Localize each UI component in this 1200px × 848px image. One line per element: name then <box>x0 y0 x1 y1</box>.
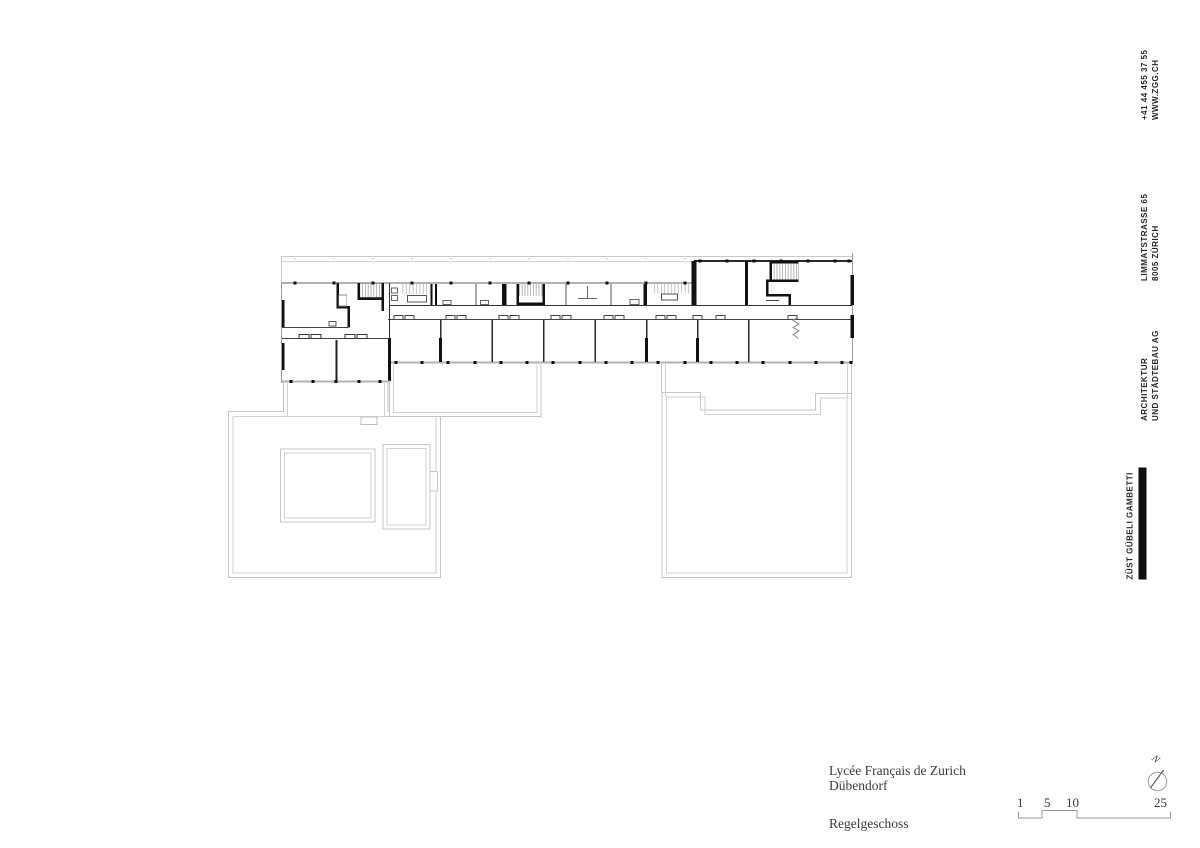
classroom-partitions <box>439 320 748 362</box>
north-arrow <box>1148 770 1167 791</box>
drawing-sheet: Lycée Français de Zurich Dübendorf Regel… <box>0 0 1200 848</box>
scale-label-1: 1 <box>1017 795 1024 811</box>
section-spring-symbol <box>793 317 799 338</box>
scale-bar-line <box>1019 811 1171 819</box>
brand-bar <box>1139 468 1147 580</box>
scale-label-5: 5 <box>1044 795 1051 811</box>
door-symbols-main <box>394 316 797 320</box>
scale-label-25: 25 <box>1154 795 1167 811</box>
firm-name: ZÜST GÜBELI GAMBETTI <box>1126 466 1137 580</box>
roof-openings <box>281 417 438 529</box>
wc-core-1 <box>402 284 437 305</box>
street-address: LIMMATSTRASSE 65 <box>1140 181 1151 281</box>
project-title-line1: Lycée Français de Zurich <box>829 764 966 779</box>
sidebar-firm-type: ARCHITEKTUR UND STÄDTEBAU AG <box>1140 315 1161 421</box>
drawing-title: Regelgeschoss <box>829 817 966 832</box>
project-title-line2: Dübendorf <box>829 779 966 794</box>
stair-core-2 <box>517 284 546 305</box>
wc-core-2 <box>644 284 691 305</box>
scale-label-10: 10 <box>1066 795 1079 811</box>
website: WWW.ZGG.CH <box>1151 42 1162 120</box>
roof-terrace-right <box>662 363 852 578</box>
sidebar-firm-name: ZÜST GÜBELI GAMBETTI <box>1126 466 1147 580</box>
city-address: 8005 ZÜRICH <box>1151 181 1162 281</box>
stair-core-3 <box>766 261 799 282</box>
phone-number: +41 44 455 37 55 <box>1140 42 1151 120</box>
door-symbols-left <box>299 335 367 339</box>
right-block <box>745 261 799 305</box>
sidebar-contact: +41 44 455 37 55 WWW.ZGG.CH <box>1140 42 1161 120</box>
title-block: Lycée Français de Zurich Dübendorf Regel… <box>829 764 966 832</box>
floor-plan <box>0 0 1200 848</box>
sidebar-address: LIMMATSTRASSE 65 8005 ZÜRICH <box>1140 181 1161 281</box>
firm-type-line2: UND STÄDTEBAU AG <box>1151 315 1162 421</box>
firm-type-line1: ARCHITEKTUR <box>1140 315 1151 421</box>
stair-core-1 <box>358 283 385 311</box>
